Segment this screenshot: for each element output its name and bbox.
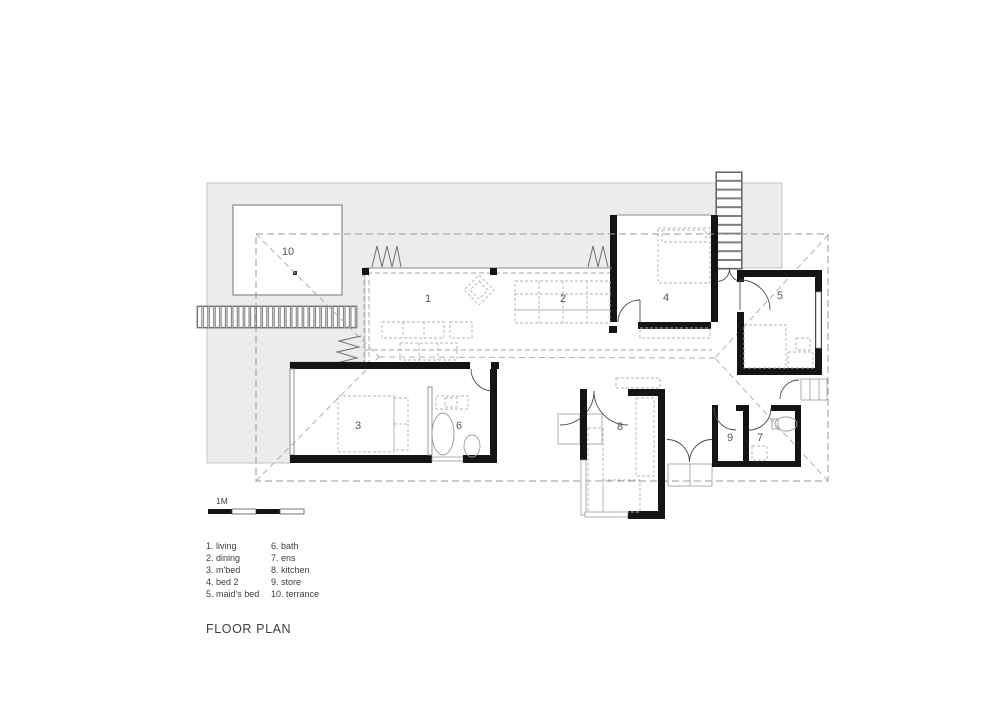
- roof-ridge: [379, 357, 715, 358]
- hall-double-door-right: [594, 391, 628, 425]
- room-label-maids-bed: 5: [777, 290, 783, 302]
- walkway-slats: [197, 306, 357, 328]
- kitchen-counter-west: [588, 428, 603, 512]
- scale-seg-2: [232, 509, 256, 514]
- maid-east-window: [816, 292, 821, 348]
- maid-north-wall: [737, 270, 822, 277]
- room-label-dining: 2: [560, 293, 566, 305]
- living-column-n: [490, 268, 497, 275]
- room-maids-bed: [737, 270, 822, 375]
- coffee-table-inner: [470, 281, 488, 299]
- legend-item-store: 9. store: [271, 577, 301, 587]
- room-label-mbed: 3: [355, 420, 361, 432]
- room-label-kitchen: 8: [617, 421, 623, 433]
- legend-item-mbed: 3. m'bed: [206, 565, 240, 575]
- room-mbed-bath: [290, 362, 499, 463]
- scale-seg-4: [280, 509, 304, 514]
- entry-double-door-right: [690, 440, 713, 463]
- legend-item-kitchen: 8. kitchen: [271, 565, 310, 575]
- ens-east-wall: [795, 405, 801, 467]
- ens-door-arc: [749, 408, 771, 430]
- bath-door-arc: [471, 369, 493, 391]
- side-door-arc: [780, 380, 799, 399]
- room-label-terrance: 10: [282, 246, 294, 258]
- room-label-ens: 7: [757, 432, 763, 444]
- room-label-bath: 6: [456, 420, 462, 432]
- stair-treads: [716, 172, 742, 269]
- maid-south-wall: [737, 368, 822, 375]
- stair-door-left: [717, 269, 730, 282]
- kitchen-island: [636, 398, 654, 476]
- maid-west-wall-b: [737, 312, 744, 368]
- maid-chair: [796, 338, 810, 350]
- legend-item-living: 1. living: [206, 541, 237, 551]
- room-label-store: 9: [727, 432, 733, 444]
- armchair: [450, 322, 472, 338]
- scale-bar-label: 1M: [216, 496, 228, 506]
- legend: 1. living 2. dining 3. m'bed 4. bed 2 5.…: [206, 541, 319, 599]
- hall-double-door-left: [560, 391, 594, 425]
- kitchen-west-window: [581, 460, 586, 515]
- maid-bed: [744, 325, 786, 368]
- kitchen-north-wall: [628, 389, 665, 396]
- legend-item-bath: 6. bath: [271, 541, 299, 551]
- maid-desk: [788, 352, 813, 368]
- kitchen-counter-south: [603, 480, 640, 512]
- sofa-row-2: [400, 343, 457, 360]
- legend-item-terrance: 10. terrance: [271, 589, 319, 599]
- kitchen-fridge: [616, 378, 660, 388]
- bath-basin: [445, 398, 457, 407]
- kitchen-west-wall: [580, 389, 587, 460]
- drawing-title: FLOOR PLAN: [206, 622, 291, 636]
- bed2-column: [609, 326, 617, 333]
- store-ens-partition: [743, 411, 749, 461]
- dining-chairs-south: [515, 310, 610, 323]
- mbed-south-wall: [290, 455, 432, 463]
- living-column-nw: [362, 268, 369, 275]
- sofa-row: [382, 322, 444, 338]
- kitchen-south-window: [585, 512, 628, 517]
- bed2-floor: [617, 215, 711, 330]
- maid-door-arc: [740, 280, 770, 310]
- bathtub: [432, 413, 454, 455]
- bath-south-window: [432, 457, 463, 461]
- room-store-ens: [712, 379, 827, 467]
- legend-item-dining: 2. dining: [206, 553, 240, 563]
- room-label-bed2: 4: [663, 292, 669, 304]
- coffee-table-outer: [464, 275, 494, 305]
- bath-toilet: [464, 435, 480, 457]
- legend-item-ens: 7. ens: [271, 553, 296, 563]
- bath-east-wall: [490, 369, 497, 455]
- legend-item-maids-bed: 5. maid's bed: [206, 589, 259, 599]
- mbed-north-wall: [290, 362, 470, 369]
- scale-seg-3: [256, 509, 280, 514]
- ens-basin: [752, 446, 767, 460]
- floor-plan-drawing: 1 2 3 4 5 6 7 8 9 10 1M 1. living 2. din…: [0, 0, 1000, 707]
- legend-item-bed2: 4. bed 2: [206, 577, 239, 587]
- scale-bar: 1M: [208, 496, 304, 514]
- room-bed2: [609, 215, 718, 338]
- side-steps: [801, 379, 827, 400]
- scale-seg-1: [208, 509, 232, 514]
- bed2-east-wall: [711, 215, 718, 322]
- floor-plan-sheet: 1 2 3 4 5 6 7 8 9 10 1M 1. living 2. din…: [0, 0, 1000, 707]
- mbed-bath-partition: [428, 387, 432, 455]
- mbed-bed: [338, 396, 394, 452]
- walkway-deck: [197, 306, 357, 328]
- store-ens-jamb: [736, 405, 749, 411]
- store-ens-south-wall: [712, 461, 801, 467]
- maid-west-wall-a: [737, 277, 744, 282]
- kitchen-east-wall: [658, 389, 665, 519]
- mbed-west-wall: [290, 369, 294, 455]
- stairs: [716, 172, 742, 282]
- room-label-living: 1: [425, 293, 431, 305]
- bath-north-column: [491, 362, 499, 369]
- entry-double-door-left: [667, 440, 690, 463]
